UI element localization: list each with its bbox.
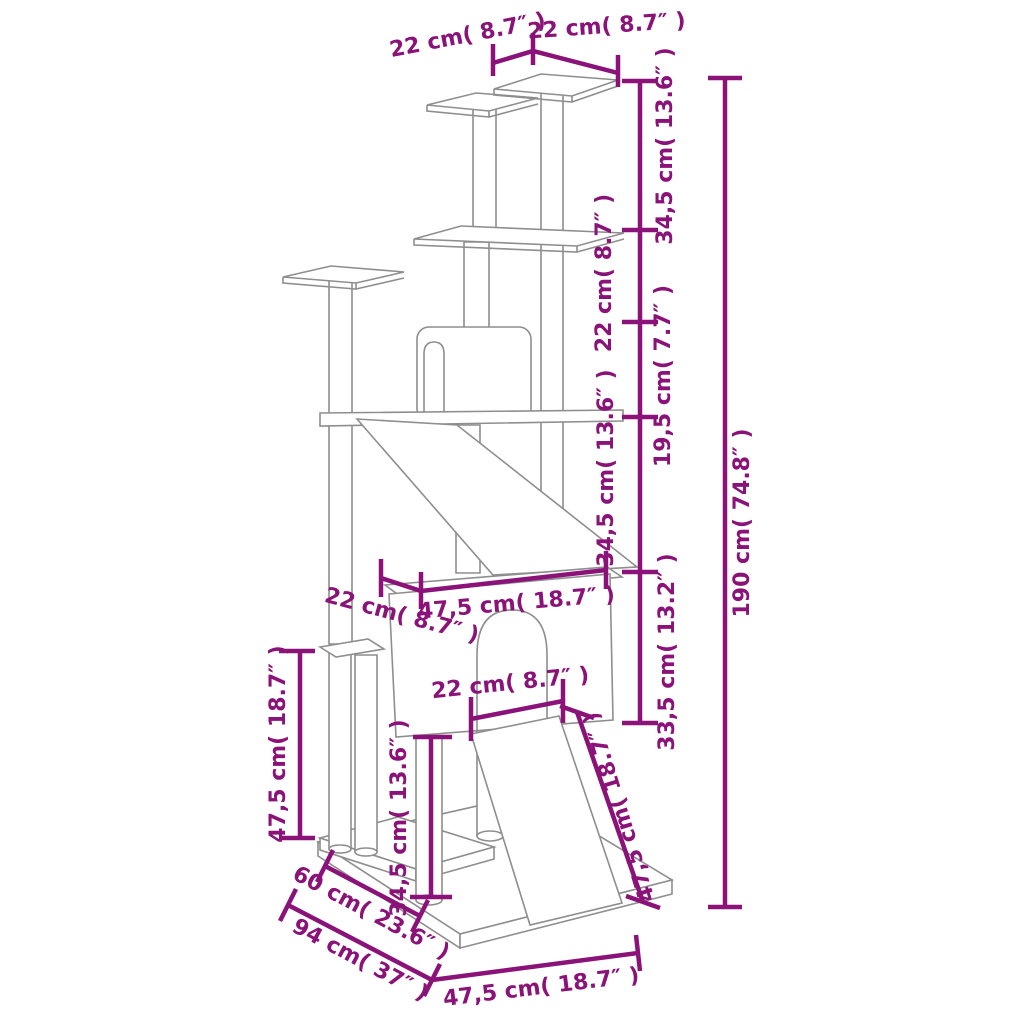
dim-label-condo-height: 33,5 cm( 13.2″ ) [655,553,680,750]
post-foot [355,848,377,856]
dim-label-top-platform-right-width: 22 cm( 8.7″ ) [527,9,687,45]
dim-label-left-post-height: 47,5 cm( 18.7″ ) [266,645,291,842]
upper-condo [417,327,531,421]
cat-tree-dimension-diagram: 22 cm( 8.7″ ) 22 cm( 8.7″ ) 34,5 cm( 13.… [0,0,1024,1024]
dim-label-level1-height: 34,5 cm( 13.6″ ) [653,47,678,244]
dim-label-level2-height: 22 cm( 8.7″ ) [592,194,617,352]
dim-label-lower-post-height: 34,5 cm( 13.6″ ) [387,719,412,916]
scratching-post [473,103,496,232]
dim-tick [280,889,296,921]
dim-line-top-widths [493,51,618,73]
diagram-page: 22 cm( 8.7″ ) 22 cm( 8.7″ ) 34,5 cm( 13.… [0,0,1024,1024]
dim-label-base-width: 47,5 cm( 18.7″ ) [442,963,641,1012]
dim-label-level4-height: 34,5 cm( 13.6″ ) [594,369,619,566]
post-foot [477,831,503,841]
scratching-post [355,655,377,852]
scratching-post [329,652,351,849]
dim-label-total-height: 190 cm( 74.8″ ) [730,428,755,617]
dim-left-post-height: 47,5 cm( 18.7″ ) [266,645,315,842]
dim-total-height: 190 cm( 74.8″ ) [708,78,755,907]
left-perch-platform [283,266,404,283]
dim-label-level3-height: 19,5 cm( 7.7″ ) [651,285,676,467]
